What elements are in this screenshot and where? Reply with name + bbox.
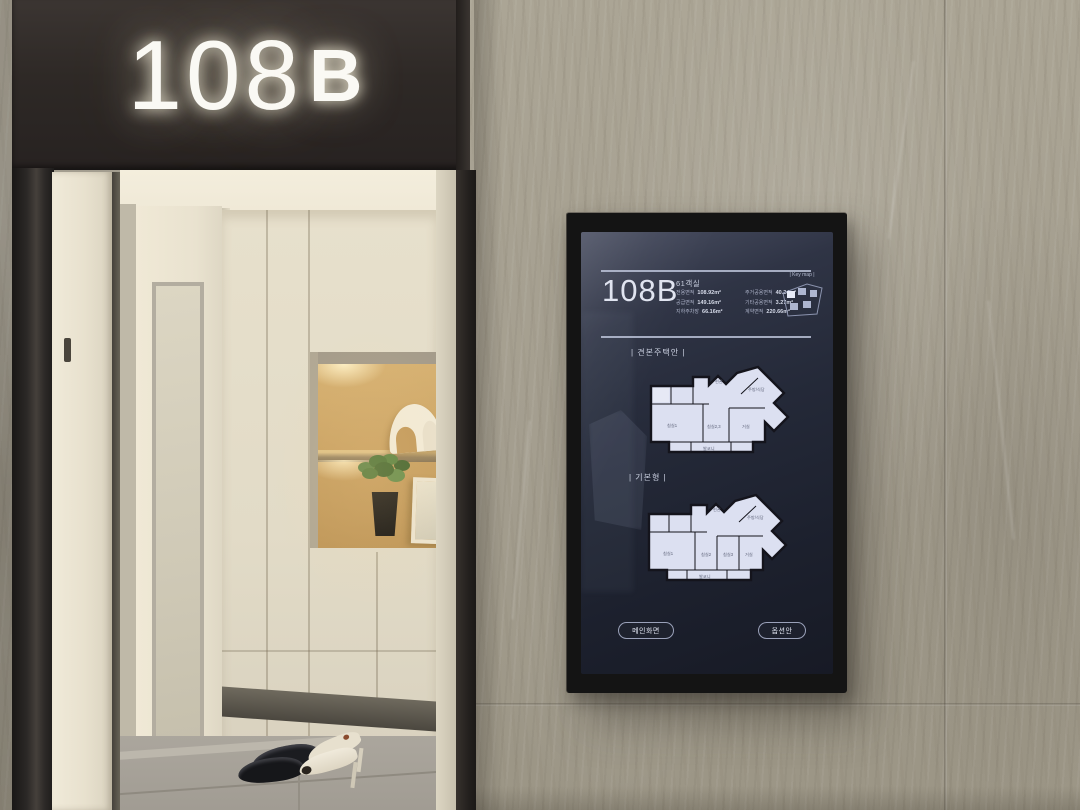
svg-text:거실: 거실 (742, 423, 750, 430)
door-sidelight-panel (152, 282, 204, 762)
wall-tile-seam-horizontal (470, 703, 1080, 706)
wall-doorframe-shadow (474, 0, 502, 810)
area-label: 계약면적 (745, 308, 763, 315)
cabinet-seam (222, 650, 436, 652)
kiosk-unit-subtitle: 61객실 (676, 278, 700, 289)
cabinet-seam (266, 210, 268, 748)
keymap-label: | Key map | (789, 272, 814, 278)
keymap-site-plan (778, 279, 826, 321)
svg-text:현관: 현관 (715, 378, 723, 384)
area-table-left: 전용면적 108.92m² 공급면적 149.16m² 지하주차장 66.16m… (676, 289, 723, 315)
entrance-header-edge (456, 0, 470, 170)
area-row: 지하주차장 66.16m² (676, 308, 723, 315)
svg-text:침실3: 침실3 (723, 551, 734, 557)
interior-light-glow (270, 320, 436, 620)
svg-text:발코니: 발코니 (703, 445, 715, 452)
area-value: 108.92m² (697, 290, 721, 296)
entryway-interior (120, 170, 436, 810)
kiosk-touch-screen[interactable]: 108B 61객실 전용면적 108.92m² 공급면적 149.16m² 지하… (581, 232, 833, 674)
sign-letter: B (309, 33, 362, 118)
area-label: 기타공용면적 (745, 299, 773, 306)
heel-bow (343, 734, 350, 741)
door-handle[interactable] (64, 338, 71, 362)
svg-text:침실2,3: 침실2,3 (707, 423, 721, 429)
svg-text:침실1: 침실1 (663, 550, 674, 556)
keymap: | Key map | (777, 272, 827, 326)
wall-bottom-shadow (470, 786, 1080, 810)
sign-number: 108 (128, 19, 304, 132)
kiosk-display-frame: 108B 61객실 전용면적 108.92m² 공급면적 149.16m² 지하… (566, 212, 847, 693)
area-label: 전용면적 (676, 289, 694, 296)
section-label-basic-type: | 기본형 | (629, 472, 667, 483)
area-row: 전용면적 108.92m² (676, 289, 723, 296)
door-jamb-right (456, 170, 476, 810)
main-screen-button[interactable]: 메인화면 (618, 622, 674, 639)
svg-text:발코니: 발코니 (699, 573, 711, 580)
area-label: 지하주차장 (676, 308, 699, 315)
area-row: 공급면적 149.16m² (676, 299, 723, 306)
floorplan-model-house: 침실1 침실2,3 거실 주방/식당 현관 발코니 (641, 364, 807, 461)
heel-toe-cap (301, 765, 313, 775)
header-divider-bottom (601, 336, 811, 338)
area-label: 주거공용면적 (745, 289, 773, 296)
area-value: 149.16m² (697, 300, 721, 306)
area-value: 66.16m² (702, 309, 723, 315)
sliding-door-panel[interactable] (52, 172, 112, 810)
floorplan-basic-type: 침실1 침실2 침실3 거실 주방/식당 현관 발코니 (639, 490, 805, 590)
section-label-model-house: | 견본주택안 | (631, 347, 685, 358)
unit-number-sign: 108 B (95, 0, 395, 150)
stone-wall-left-edge (0, 0, 12, 810)
svg-text:침실1: 침실1 (667, 422, 678, 428)
floor-grout-line (298, 770, 300, 810)
svg-text:거실: 거실 (745, 551, 753, 558)
svg-text:침실2: 침실2 (701, 551, 712, 557)
svg-text:현관: 현관 (713, 506, 721, 512)
area-label: 공급면적 (676, 299, 694, 306)
door-jamb-left (12, 168, 54, 810)
kiosk-unit-title: 108B (602, 275, 678, 306)
door-reveal-right (436, 170, 456, 810)
svg-text:주방/식당: 주방/식당 (747, 514, 764, 521)
showroom-scene: 108 B (0, 0, 1080, 810)
svg-text:주방/식당: 주방/식당 (748, 386, 765, 393)
wall-tile-seam-vertical (944, 0, 947, 810)
interior-door-frame (120, 204, 136, 804)
option-plan-button[interactable]: 옵션안 (758, 622, 806, 639)
